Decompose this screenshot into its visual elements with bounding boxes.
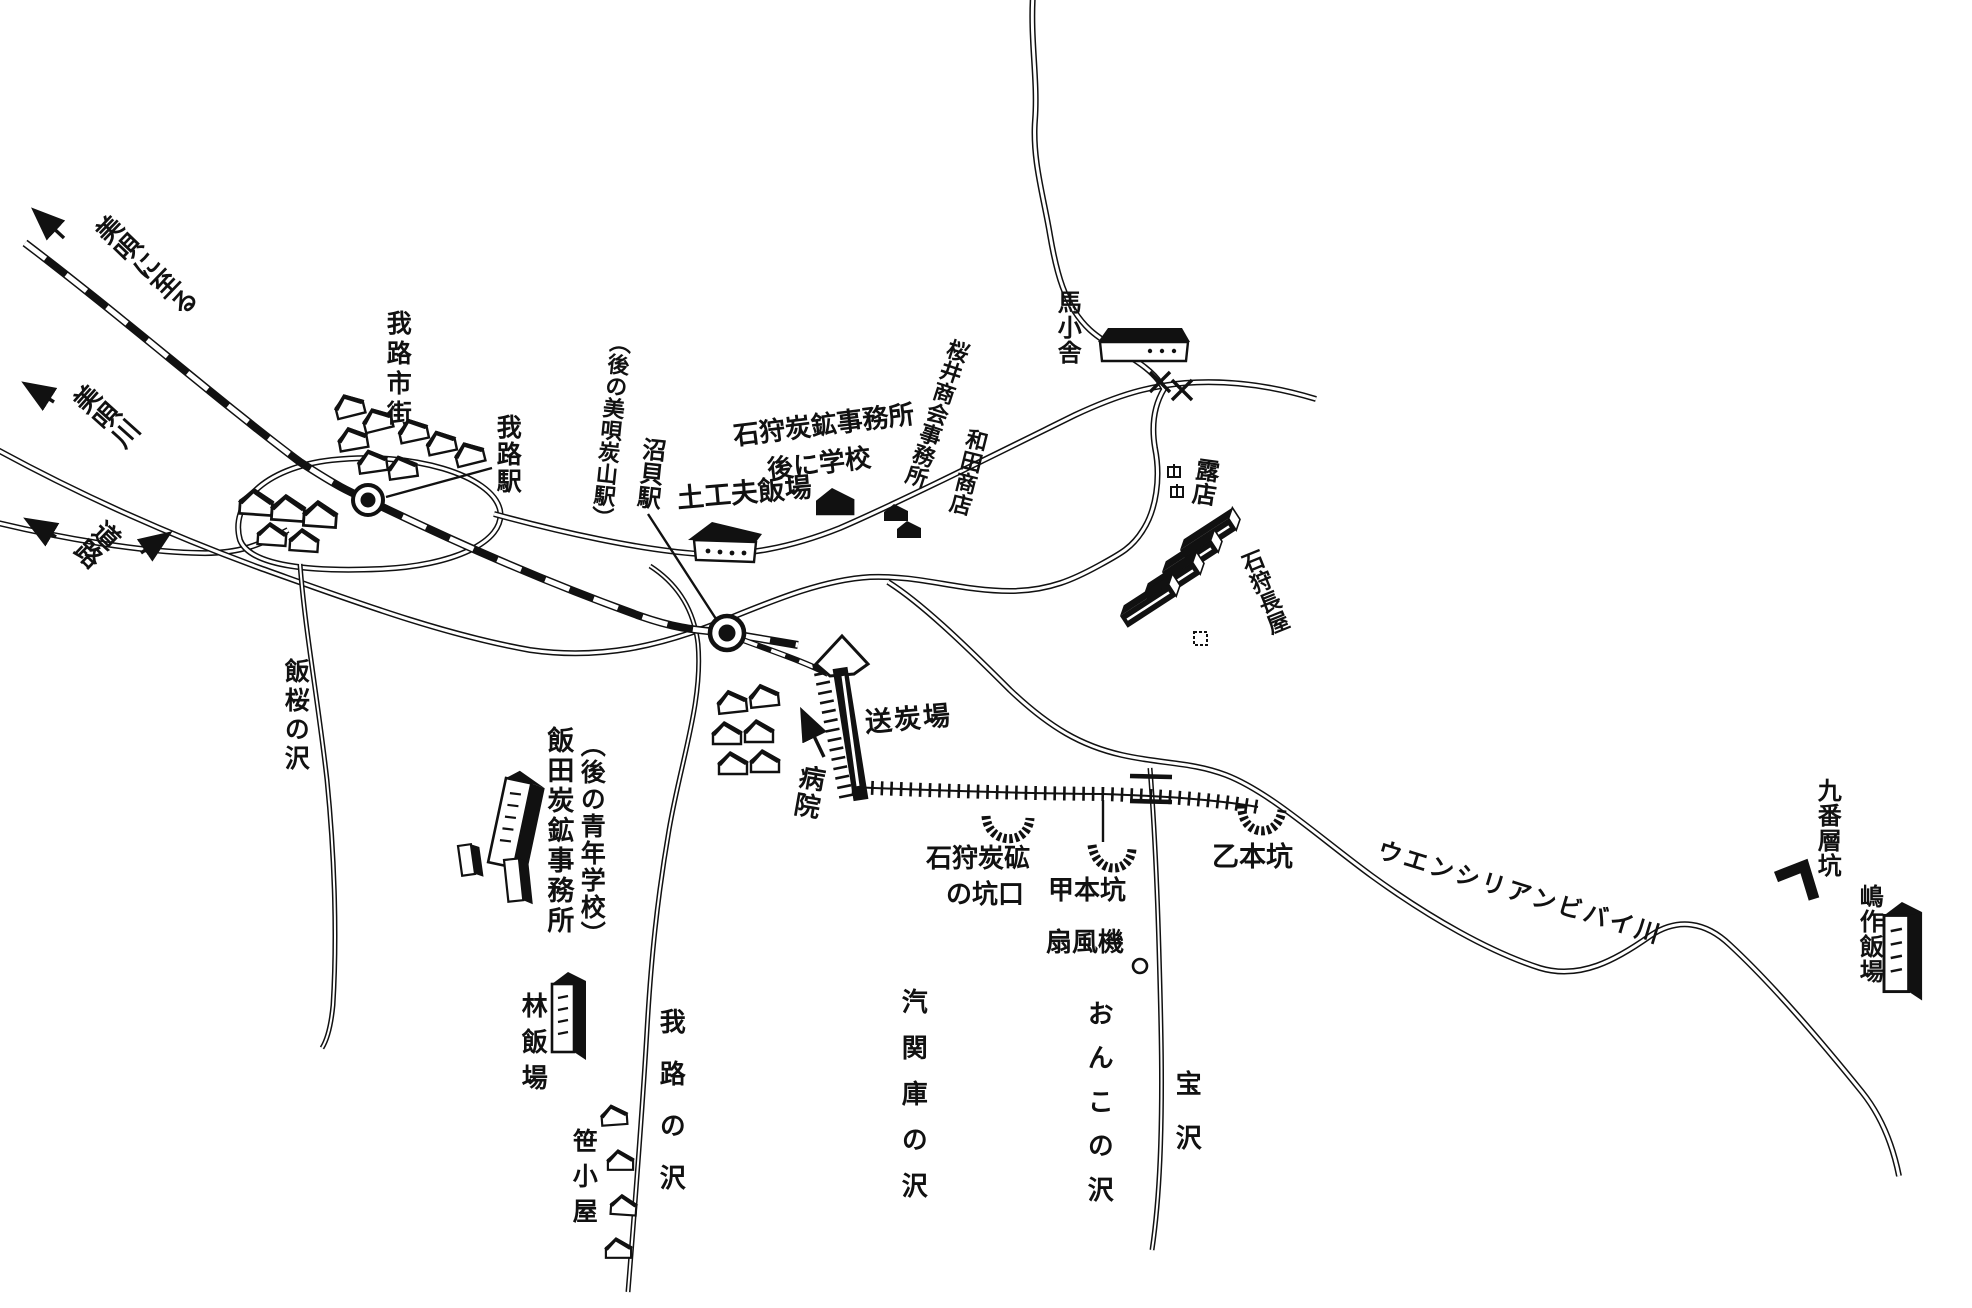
label-gamuro-sawa: 我路の沢 — [656, 1008, 683, 1216]
river-lines — [0, 0, 1899, 1292]
house-icon — [355, 447, 390, 474]
black-house-icon — [897, 521, 921, 538]
fan-icon — [1133, 959, 1147, 973]
label-kikanko-sawa: 汽関庫の沢 — [898, 988, 925, 1218]
label-takarasawa: 宝沢 — [1172, 1070, 1199, 1178]
label-horse-shed: 馬小舎 — [1054, 290, 1079, 365]
house-icon — [749, 749, 781, 772]
map-canvas: 美唄に至る 美唄川 道路 我路市街 我路駅 （後の美唄炭山駅） 沼貝駅 石狩炭鉱… — [0, 0, 1972, 1308]
black-house-icon — [816, 488, 854, 515]
label-roten: 露店 — [1187, 456, 1219, 507]
small-building-icon — [504, 857, 533, 906]
label-fan: 扇風機 — [1046, 930, 1124, 957]
kohonko-mine-entrance-icon — [1092, 845, 1132, 868]
house-icon — [715, 688, 749, 714]
label-ko-hon-ko: 甲本坑 — [1048, 878, 1126, 905]
label-iida-office-note: （後の青年学校） — [578, 732, 604, 948]
house-icon — [255, 521, 289, 546]
label-hayashi-hanba: 林飯場 — [518, 992, 545, 1100]
small-building-icon — [458, 843, 484, 880]
label-ishikari-pit-line1: 石狩炭砿 — [926, 846, 1030, 873]
label-gamuro-town: 我路市街 — [384, 310, 410, 430]
house-icon — [287, 527, 321, 552]
map-linework — [0, 0, 1972, 1308]
label-numakai-station: 沼貝駅 — [632, 436, 665, 510]
label-ishikari-pit-line2: の坑口 — [946, 882, 1024, 909]
house-icon — [743, 719, 775, 742]
house-icon — [711, 721, 743, 744]
label-otsu-hon-ko: 乙本坑 — [1212, 844, 1293, 872]
label-shimasaku-hanba: 嶋作飯場 — [1856, 884, 1881, 984]
horse-shed-building — [1098, 328, 1190, 361]
house-icon — [747, 682, 781, 708]
mine-tramway — [852, 787, 1258, 807]
otsuhonko-mine-entrance-icon — [1242, 805, 1282, 831]
label-hanzakura-sawa: 飯桜の沢 — [282, 658, 308, 774]
stall-icon — [1168, 464, 1180, 477]
house-icon — [269, 493, 308, 522]
label-gamuro-station: 我路駅 — [494, 414, 520, 495]
ishikari-pit-mine-entrance-icon — [986, 816, 1030, 839]
gamuro-station-icon — [353, 468, 492, 515]
house-icon — [606, 1149, 635, 1170]
small-shed-icon — [1194, 632, 1207, 645]
rowhouse-icon — [1116, 574, 1184, 628]
tall-building-icon — [1884, 902, 1922, 1001]
house-icon — [331, 390, 368, 420]
label-kyubanso-ko: 九番層坑 — [1814, 778, 1839, 878]
ishikari-nagaya-buildings — [1116, 508, 1244, 628]
railway-line — [25, 243, 828, 674]
dokofu-hanba-building — [688, 522, 762, 562]
house-icon — [301, 499, 340, 528]
label-iida-office: 飯田炭鉱事務所 — [543, 726, 571, 936]
stall-icon — [1171, 484, 1183, 497]
house-icon — [599, 1103, 629, 1126]
house-icon — [717, 751, 749, 774]
label-onko-sawa: おんこの沢 — [1084, 1000, 1111, 1220]
house-icon — [237, 487, 276, 516]
hospital-houses — [711, 682, 781, 774]
label-sasagoya: 笹小屋 — [570, 1128, 596, 1233]
tall-building-icon — [552, 972, 586, 1060]
house-icon — [604, 1237, 633, 1258]
kyubanso-mine-icon — [1776, 866, 1814, 899]
